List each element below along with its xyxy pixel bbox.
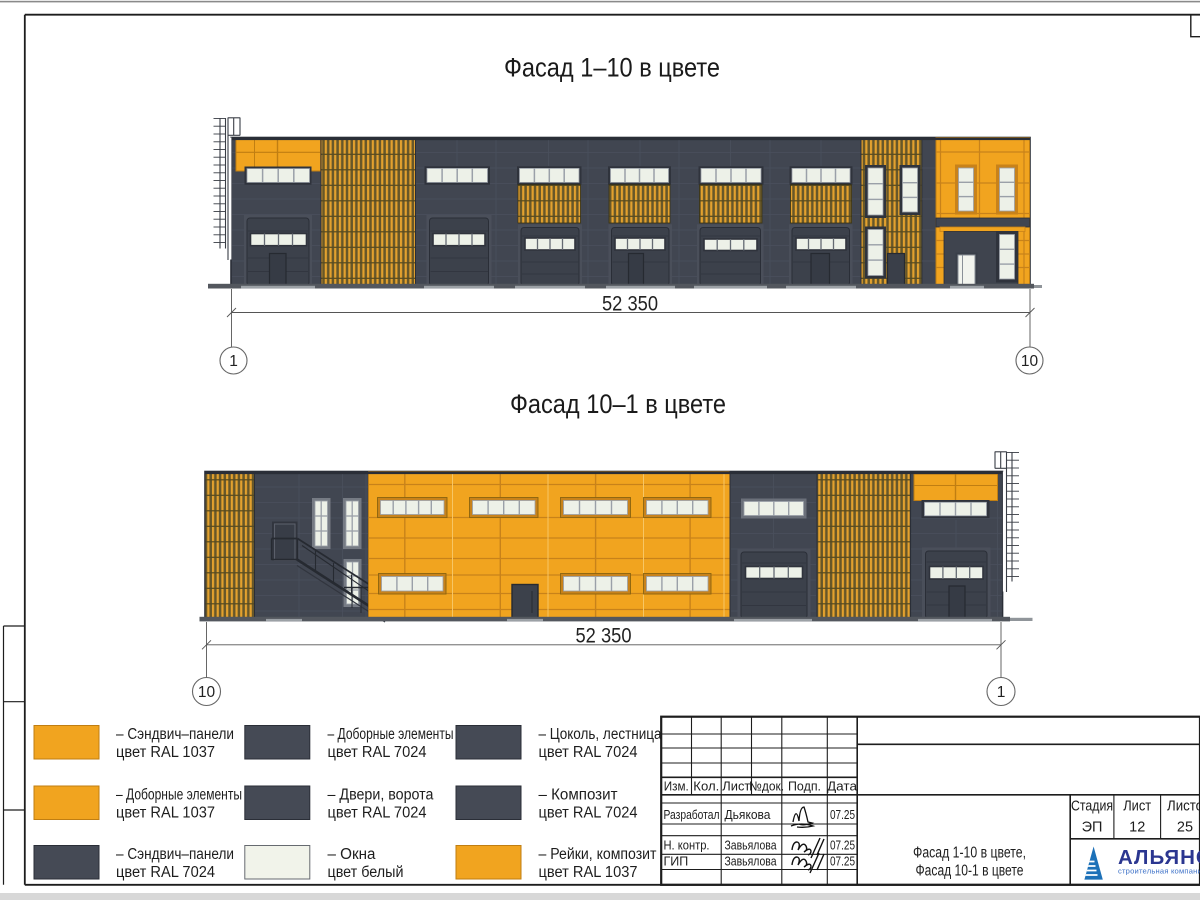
svg-text:цвет белый: цвет белый [328,864,404,881]
svg-text:Фасад 1–10 в цвете: Фасад 1–10 в цвете [504,53,720,83]
svg-text:Стадия: Стадия [1071,799,1113,815]
svg-text:цвет RAL 7024: цвет RAL 7024 [328,744,427,761]
svg-text:№док.: №док. [749,779,784,794]
svg-text:строительная компания: строительная компания [1118,867,1200,876]
svg-text:07.25: 07.25 [830,808,855,822]
svg-text:Завьялова: Завьялова [725,855,777,869]
svg-text:Подп.: Подп. [788,779,821,794]
svg-text:10: 10 [1021,353,1039,370]
svg-text:Фасад 1-10 в цвете,: Фасад 1-10 в цвете, [913,845,1026,862]
svg-text:цвет RAL 1037: цвет RAL 1037 [116,805,215,822]
svg-text:– Доборные элементы: – Доборные элементы [328,726,454,743]
svg-text:ЭП: ЭП [1082,820,1103,836]
svg-text:07.25: 07.25 [830,839,855,853]
svg-text:– Рейки, композит: – Рейки, композит [539,846,657,863]
svg-text:цвет RAL 7024: цвет RAL 7024 [116,864,215,881]
svg-text:52 350: 52 350 [602,293,658,316]
svg-text:Н. контр.: Н. контр. [664,839,710,853]
svg-text:ГИП: ГИП [664,855,689,869]
svg-text:цвет RAL 7024: цвет RAL 7024 [539,805,638,822]
svg-text:Завьялова: Завьялова [725,839,777,853]
svg-text:Дьякова: Дьякова [725,808,771,822]
svg-text:Лист: Лист [722,779,750,794]
svg-text:Кол.: Кол. [693,779,719,794]
svg-text:цвет RAL 7024: цвет RAL 7024 [539,744,638,761]
svg-text:– Двери, ворота: – Двери, ворота [328,787,434,804]
svg-text:12: 12 [1129,820,1145,836]
svg-text:10: 10 [198,684,216,701]
svg-text:1: 1 [229,353,238,370]
svg-text:Изм.: Изм. [664,779,689,794]
svg-text:– Доборные элементы: – Доборные элементы [116,787,242,804]
svg-text:– Сэндвич–панели: – Сэндвич–панели [116,846,234,863]
svg-text:07.25: 07.25 [830,855,855,869]
svg-text:– Сэндвич–панели: – Сэндвич–панели [116,726,234,743]
svg-text:Фасад 10-1 в цвете: Фасад 10-1 в цвете [916,863,1024,880]
svg-text:25: 25 [1177,820,1193,836]
svg-text:Лист: Лист [1123,799,1151,815]
svg-text:цвет RAL 1037: цвет RAL 1037 [116,744,215,761]
svg-text:– Окна: – Окна [328,846,376,863]
svg-text:1: 1 [997,684,1006,701]
svg-text:52 350: 52 350 [576,625,632,648]
svg-text:– Композит: – Композит [539,787,618,804]
svg-text:Фасад 10–1 в цвете: Фасад 10–1 в цвете [510,389,726,419]
svg-text:Листо: Листо [1167,799,1200,815]
svg-text:Разработал: Разработал [664,808,720,822]
svg-text:– Цоколь, лестница: – Цоколь, лестница [539,726,662,743]
svg-text:цвет RAL 1037: цвет RAL 1037 [539,864,638,881]
svg-text:цвет RAL 7024: цвет RAL 7024 [328,805,427,822]
svg-text:Дата: Дата [827,779,858,794]
